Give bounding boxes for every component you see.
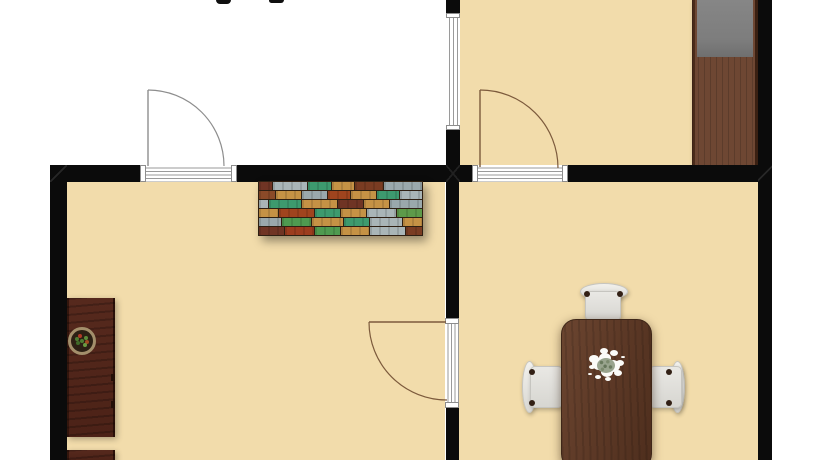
sideboard-plank	[344, 218, 369, 226]
window-jamb-bottom	[446, 125, 460, 130]
sideboard-plank	[377, 191, 399, 199]
sideboard-plank	[279, 209, 314, 217]
sideboard-plank	[370, 218, 402, 226]
sideboard-plank	[397, 209, 422, 217]
sideboard-plank	[332, 182, 354, 190]
sideboard-plank-row	[259, 227, 422, 235]
sideboard-plank	[384, 182, 422, 190]
sideboard-planks	[258, 181, 423, 236]
sideboard-plank-row	[259, 218, 422, 226]
sideboard-plank	[259, 218, 281, 226]
sideboard-plank	[351, 191, 376, 199]
sideboard-plank	[308, 182, 330, 190]
floor-plan	[0, 0, 830, 460]
sideboard-plank	[282, 218, 310, 226]
potted-plant	[68, 327, 96, 355]
sideboard-plank	[285, 227, 313, 235]
sideboard-plank	[315, 209, 340, 217]
sideboard-plank-row	[259, 182, 422, 190]
sideboard-plank	[302, 200, 337, 208]
door-bottom-jamb-b	[445, 402, 459, 408]
sideboard-plank	[259, 191, 275, 199]
window-jamb-top	[446, 13, 460, 18]
door-top-right-threshold	[472, 165, 568, 182]
wall-divider-bottom-lower	[446, 408, 459, 460]
door-top-left-threshold	[140, 165, 237, 182]
sideboard-plank	[315, 227, 340, 235]
wall-divider-top-upper	[446, 0, 460, 13]
sideboard-plank	[338, 200, 363, 208]
sideboard-plank	[273, 182, 308, 190]
chair-top-fitting-left	[584, 291, 590, 297]
sideboard-plank	[367, 209, 395, 217]
sideboard-plank	[403, 218, 422, 226]
cropped-label-fragment-left	[216, 0, 231, 4]
wall-middle-seg-b	[237, 165, 472, 182]
flower-centerpiece	[583, 343, 629, 389]
wall-corner-bevel	[50, 165, 67, 182]
sideboard-plank	[276, 191, 301, 199]
centerpiece-core	[597, 358, 615, 373]
sideboard-plank	[312, 218, 344, 226]
sideboard-plank	[259, 200, 268, 208]
room-top-left-floor	[0, 0, 446, 165]
sideboard-plank	[341, 209, 366, 217]
wall-divider-top-lower	[446, 130, 460, 167]
sideboard-plank	[390, 200, 422, 208]
chair-left-fitting-top	[529, 369, 535, 375]
door-top-right-jamb-a	[472, 165, 478, 182]
cabinet-hinge-notch-b	[111, 401, 115, 408]
sideboard-plank	[400, 191, 422, 199]
wall-left	[50, 165, 67, 460]
door-top-left-jamb-a	[140, 165, 146, 182]
door-bottom-jamb-a	[445, 318, 459, 324]
wall-joint-x	[446, 165, 460, 182]
wall-divider-bottom-upper	[446, 182, 459, 318]
sideboard-plank	[328, 191, 350, 199]
wall-right	[758, 0, 772, 460]
wall-corner-bevel-right	[758, 165, 772, 182]
sideboard-plank-row	[259, 191, 422, 199]
sideboard-plank	[259, 182, 272, 190]
sideboard-plank-row	[259, 200, 422, 208]
door-top-left-jamb-b	[231, 165, 237, 182]
dining-table	[561, 319, 652, 460]
chair-right-fitting-bottom	[666, 400, 672, 406]
sideboard-plank	[259, 227, 284, 235]
chair-right-fitting-top	[666, 369, 672, 375]
chair-top-seat	[585, 291, 621, 321]
chair-top-fitting-right	[617, 291, 623, 297]
door-top-right-jamb-b	[562, 165, 568, 182]
wall-middle-seg-c	[568, 165, 772, 182]
plant-foliage	[80, 339, 84, 343]
sideboard-plank	[302, 191, 327, 199]
cabinet-hinge-notch-a	[111, 374, 115, 381]
chair-left-fitting-bottom	[529, 400, 535, 406]
cropped-label-fragment-right	[269, 0, 284, 3]
door-bottom-threshold	[445, 318, 459, 408]
sideboard-plank	[364, 200, 389, 208]
sideboard-plank	[355, 182, 383, 190]
sideboard-plank	[341, 227, 369, 235]
window-upper-divider	[446, 13, 460, 130]
sideboard-plank	[406, 227, 422, 235]
wardrobe-top-panel	[697, 0, 753, 57]
sideboard-plank	[370, 227, 405, 235]
lower-cabinet	[67, 450, 115, 460]
sideboard-plank	[259, 209, 278, 217]
sideboard-plank	[269, 200, 301, 208]
sideboard-plank-row	[259, 209, 422, 217]
tall-cabinet	[67, 298, 115, 437]
